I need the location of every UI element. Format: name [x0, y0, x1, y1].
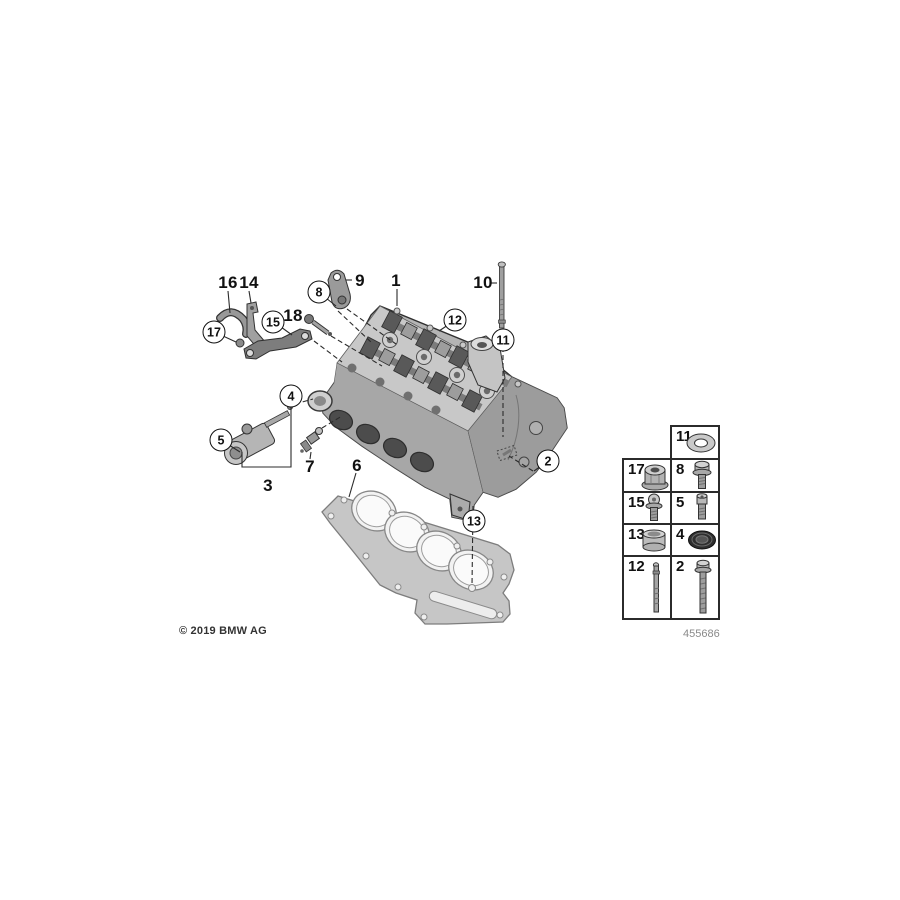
callout-circle-4: 4 — [280, 385, 303, 408]
drawing-number: 455686 — [683, 628, 720, 640]
legend-cell-2: 2 — [670, 555, 720, 620]
legend-cell-8: 8 — [670, 458, 720, 493]
callout-circle-2: 2 — [537, 450, 560, 473]
callout-1: 1 — [391, 271, 401, 291]
sensor-part-7 — [300, 428, 322, 453]
legend-num-5: 5 — [676, 494, 684, 511]
callout-10: 10 — [473, 273, 493, 293]
legend-num-2: 2 — [676, 558, 684, 575]
hex-bolt-icon — [688, 460, 718, 491]
legend-cell-17: 17 — [622, 458, 672, 493]
cylinder-head-illustration — [308, 306, 567, 521]
callout-14: 14 — [239, 273, 259, 293]
callout-7: 7 — [305, 457, 315, 477]
legend-num-8: 8 — [676, 461, 684, 478]
head-gasket-illustration — [322, 484, 514, 624]
legend-cell-11: 11 — [670, 425, 720, 460]
pump-part-3 — [225, 404, 293, 464]
legend-cell-13: 13 — [622, 523, 672, 557]
callout-3: 3 — [263, 476, 273, 496]
stud-icon — [640, 559, 670, 617]
callout-9: 9 — [355, 271, 365, 291]
socket-head-bolt-icon — [688, 493, 718, 523]
callout-circle-13: 13 — [463, 510, 486, 533]
callout-circle-17: 17 — [203, 321, 226, 344]
callout-16: 16 — [218, 273, 238, 293]
parts-diagram-svg — [0, 0, 900, 900]
parts-diagram-page: 16 14 9 1 10 18 7 3 6 8 17 15 12 11 4 5 … — [0, 0, 900, 900]
callout-circle-11: 11 — [492, 329, 515, 352]
stud-part-10 — [498, 262, 505, 328]
callout-6: 6 — [352, 456, 362, 476]
torx-flange-bolt-icon — [640, 493, 670, 523]
flange-nut-icon — [636, 461, 670, 491]
callout-circle-12: 12 — [444, 309, 467, 332]
callout-circle-5: 5 — [210, 429, 233, 452]
legend-cell-5: 5 — [670, 491, 720, 525]
washer-icon — [684, 429, 718, 457]
legend-cell-4: 4 — [670, 523, 720, 557]
long-hex-bolt-icon — [688, 559, 718, 617]
callout-18: 18 — [283, 306, 303, 326]
legend-cell-15: 15 — [622, 491, 672, 525]
legend-cell-12: 12 — [622, 555, 672, 620]
callout-circle-8: 8 — [308, 281, 331, 304]
copyright-notice: © 2019 BMW AG — [179, 625, 267, 637]
seal-ring-icon — [684, 526, 718, 554]
dowel-sleeve-icon — [636, 525, 670, 555]
callout-circle-15: 15 — [262, 311, 285, 334]
